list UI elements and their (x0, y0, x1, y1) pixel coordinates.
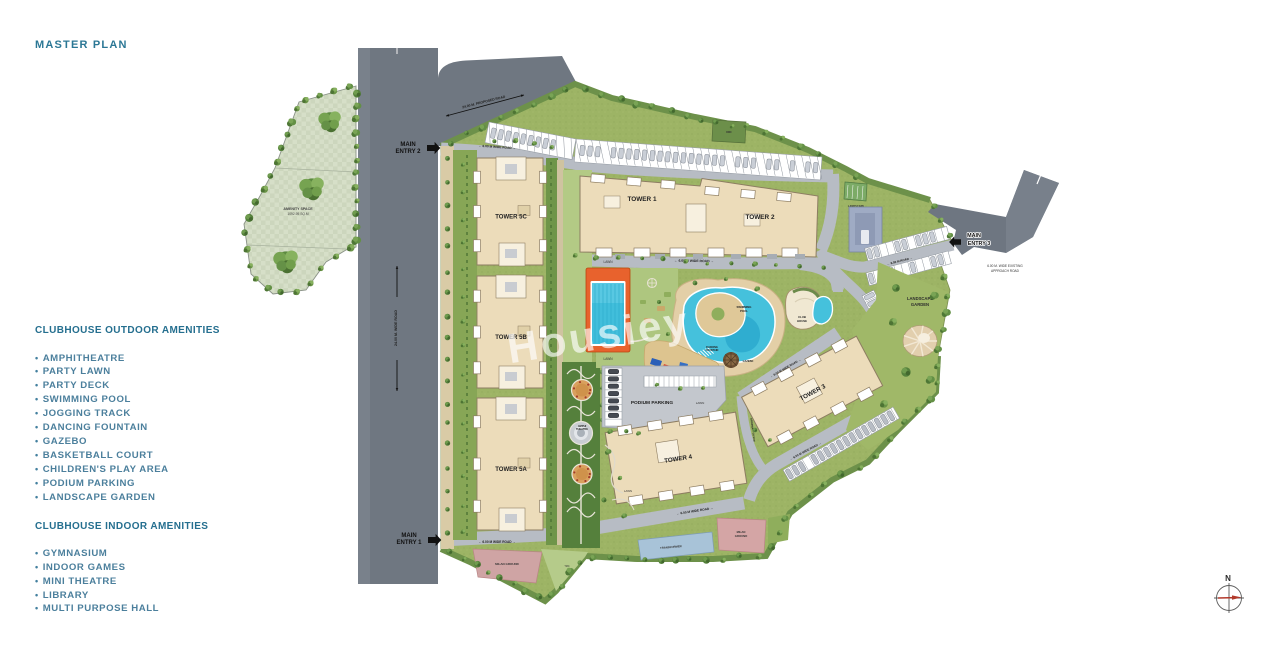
svg-text:ENTRY 3: ENTRY 3 (968, 241, 990, 247)
svg-text:N: N (1225, 574, 1231, 583)
svg-text:DMC: DMC (726, 131, 732, 134)
svg-text:1092.95 SQ.M: 1092.95 SQ.M (287, 212, 309, 216)
svg-text:APPROACH ROAD: APPROACH ROAD (991, 269, 1020, 273)
svg-text:LAWN: LAWN (603, 260, 613, 264)
svg-text:LAWN: LAWN (624, 489, 632, 493)
svg-text:6.00 M. WIDE EXISTING: 6.00 M. WIDE EXISTING (987, 264, 1023, 268)
svg-text:TOWER 1: TOWER 1 (628, 196, 657, 203)
svg-text:MAIN: MAIN (967, 233, 981, 239)
svg-text:LAWN: LAWN (603, 357, 613, 361)
svg-text:TOWER 5C: TOWER 5C (495, 215, 527, 221)
svg-text:ENTRY 1: ENTRY 1 (396, 540, 422, 546)
svg-text:HOUSE: HOUSE (797, 319, 807, 323)
svg-text:POOL: POOL (740, 309, 748, 313)
svg-text:TOWER 2: TOWER 2 (746, 214, 775, 221)
svg-text:MAIN: MAIN (401, 533, 416, 539)
svg-text:GROUND: GROUND (735, 534, 747, 538)
svg-text:PODIUM PARKING: PODIUM PARKING (631, 400, 674, 406)
svg-text:GARDEN: GARDEN (911, 302, 929, 307)
svg-text:GAZEBO: GAZEBO (743, 360, 754, 363)
svg-text:ENTRY 2: ENTRY 2 (395, 149, 421, 155)
svg-text:THEATRE: THEATRE (576, 427, 588, 431)
svg-text:TMC: TMC (564, 565, 569, 568)
svg-text:MAIN: MAIN (400, 142, 415, 148)
svg-text:LANDSCAPE: LANDSCAPE (907, 296, 933, 301)
svg-text:AMENITY SPACE: AMENITY SPACE (283, 207, 313, 211)
svg-text:MILAN GROUND: MILAN GROUND (495, 562, 519, 566)
svg-text:← 6.00 M WIDE ROAD →: ← 6.00 M WIDE ROAD → (478, 540, 515, 544)
svg-text:TOWER 5A: TOWER 5A (495, 467, 527, 473)
svg-text:FOUNTAIN: FOUNTAIN (706, 349, 719, 352)
svg-text:LAWN: LAWN (696, 401, 705, 405)
svg-text:24.00 M. WIDE ROAD: 24.00 M. WIDE ROAD (394, 310, 398, 346)
